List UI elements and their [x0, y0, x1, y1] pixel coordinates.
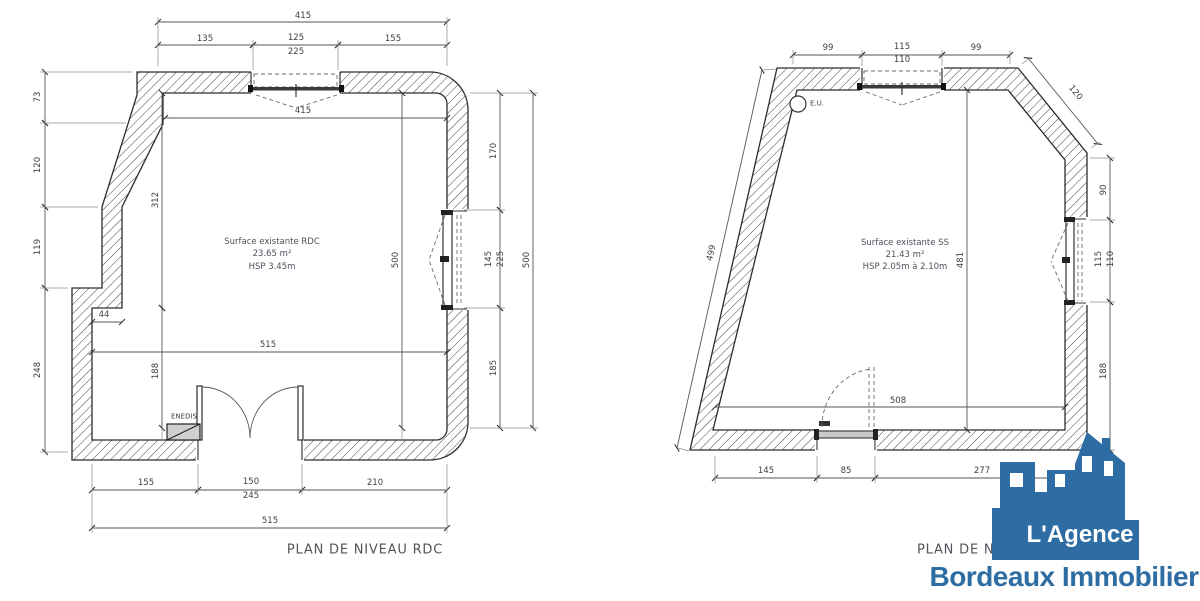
- plan-rdc-title: PLAN DE NIVEAU RDC: [287, 544, 443, 557]
- dim-label: 110: [1107, 251, 1116, 267]
- enedis-label: ENEDIS: [171, 414, 197, 421]
- agency-logo: L'Agence Bordeaux Immobilier: [928, 424, 1200, 601]
- dim-label: 99: [971, 44, 982, 53]
- floorplan-page: 415 135 125 225 155 415 73 120 119 248 3…: [0, 0, 1200, 601]
- logo-brand-text: Bordeaux Immobilier: [928, 561, 1200, 593]
- dim-label: 73: [34, 92, 43, 103]
- dim-label: 210: [367, 479, 383, 488]
- dim-label: 481: [957, 252, 966, 268]
- dim-label: 135: [197, 35, 213, 44]
- room-height-ss: HSP 2.05m à 2.10m: [863, 263, 948, 272]
- dim-label: 245: [243, 492, 259, 501]
- eu-label: E.U.: [810, 101, 824, 108]
- dim-label: 155: [138, 479, 154, 488]
- dim-label: 508: [890, 397, 906, 406]
- dim-label: 500: [523, 252, 532, 268]
- dim-label: 115: [894, 43, 910, 52]
- dim-label: 185: [490, 360, 499, 376]
- dim-label: 312: [152, 192, 161, 208]
- dim-label: 125: [288, 34, 304, 43]
- dim-label: 188: [152, 363, 161, 379]
- dim-label: 44: [99, 311, 110, 320]
- dim-label: 225: [497, 251, 506, 267]
- room-label-rdc: Surface existante RDC: [224, 238, 320, 247]
- dim-label: 110: [894, 56, 910, 65]
- dim-label: 188: [1100, 363, 1109, 379]
- dim-label: 499: [706, 244, 718, 262]
- dim-label: 150: [243, 478, 259, 487]
- dim-label: 500: [392, 252, 401, 268]
- dim-label: 225: [288, 48, 304, 57]
- dim-label: 115: [1095, 251, 1104, 267]
- dim-label: 415: [295, 107, 311, 116]
- dim-label: 515: [260, 341, 276, 350]
- dim-label: 119: [34, 239, 43, 255]
- room-height-rdc: HSP 3.45m: [249, 263, 296, 272]
- dim-label: 145: [758, 467, 774, 476]
- logo-agency-text: L'Agence: [1018, 521, 1142, 549]
- dim-label: 90: [1100, 185, 1109, 196]
- dim-label: 415: [295, 12, 311, 21]
- dim-label: 515: [262, 517, 278, 526]
- dim-label: 170: [490, 143, 499, 159]
- dim-label: 85: [841, 467, 852, 476]
- dim-label: 99: [823, 44, 834, 53]
- dim-label: 120: [34, 157, 43, 173]
- room-label-ss: Surface existante SS: [861, 239, 949, 248]
- room-area-rdc: 23.65 m²: [253, 250, 292, 259]
- dim-label: 248: [34, 362, 43, 378]
- room-area-ss: 21.43 m²: [886, 251, 925, 260]
- dim-label: 145: [485, 251, 494, 267]
- dim-label: 155: [385, 35, 401, 44]
- dim-label: 120: [1067, 84, 1084, 102]
